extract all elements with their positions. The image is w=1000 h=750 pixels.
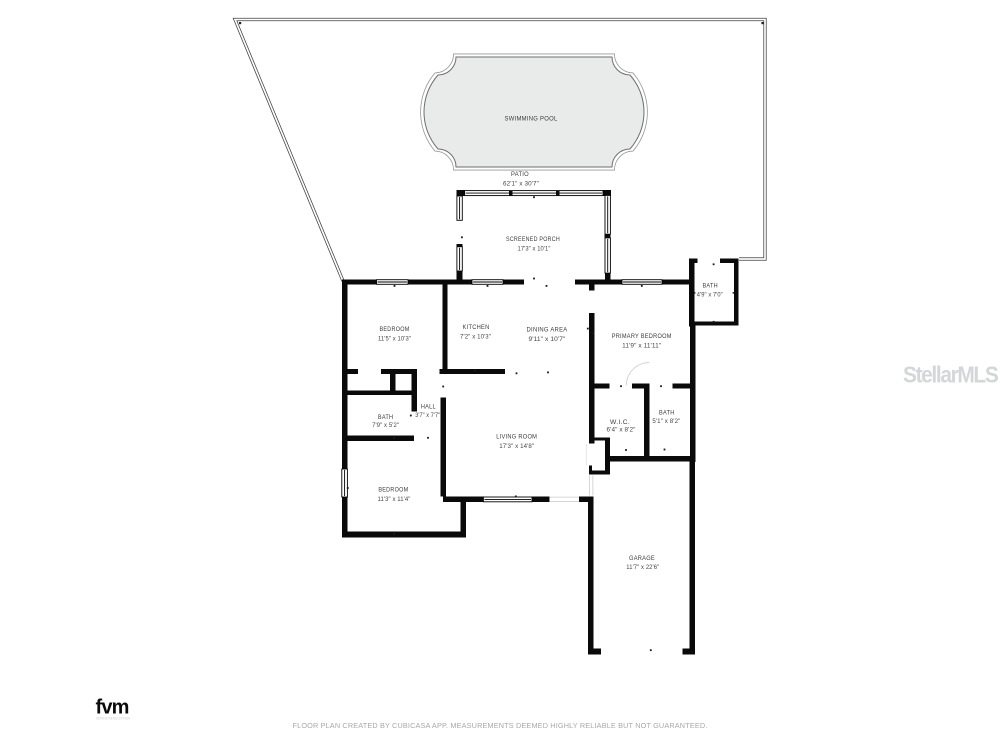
svg-text:W.I.C.: W.I.C.	[610, 419, 630, 426]
svg-text:SWIMMING POOL: SWIMMING POOL	[505, 116, 558, 123]
svg-text:17'3" x 14'8": 17'3" x 14'8"	[499, 443, 534, 450]
svg-text:BEDROOM: BEDROOM	[380, 326, 410, 333]
svg-text:BEDROOM: BEDROOM	[378, 487, 408, 494]
svg-text:62'1" x 30'7": 62'1" x 30'7"	[503, 181, 539, 188]
svg-text:FLOOR PLAN CREATED BY CUBICASA: FLOOR PLAN CREATED BY CUBICASA APP. MEAS…	[293, 721, 708, 730]
svg-text:7'2" x 10'3": 7'2" x 10'3"	[460, 333, 491, 340]
svg-text:11'3" x 11'4": 11'3" x 11'4"	[378, 496, 411, 503]
svg-text:3'7" x 7'7": 3'7" x 7'7"	[415, 412, 440, 419]
svg-text:17'3" x 10'1": 17'3" x 10'1"	[518, 245, 551, 252]
svg-text:4'9" x 7'0": 4'9" x 7'0"	[697, 291, 723, 298]
svg-text:StellarMLS: StellarMLS	[903, 362, 998, 388]
svg-text:11'5" x 10'3": 11'5" x 10'3"	[378, 336, 411, 343]
svg-text:11'7" x 22'6": 11'7" x 22'6"	[626, 564, 659, 571]
svg-text:6'4" x 8'2": 6'4" x 8'2"	[607, 426, 636, 433]
svg-text:7'9" x 5'2": 7'9" x 5'2"	[372, 422, 399, 429]
svg-text:BATH: BATH	[659, 410, 675, 417]
svg-text:CREATING BETTER REAL ESTATE ME: CREATING BETTER REAL ESTATE MEDIA	[96, 716, 130, 720]
svg-text:9'11" x 10'7": 9'11" x 10'7"	[529, 336, 566, 343]
svg-text:HALL: HALL	[421, 404, 436, 411]
svg-text:BATH: BATH	[378, 414, 394, 421]
svg-text:DINING AREA: DINING AREA	[527, 327, 568, 334]
svg-text:SCREENED PORCH: SCREENED PORCH	[506, 236, 560, 243]
svg-text:11'9" x 11'11": 11'9" x 11'11"	[622, 343, 661, 350]
svg-text:PRIMARY BEDROOM: PRIMARY BEDROOM	[612, 333, 672, 340]
svg-text:5'1" x 8'2": 5'1" x 8'2"	[652, 418, 680, 425]
svg-text:fvm: fvm	[96, 697, 129, 719]
svg-text:LIVING ROOM: LIVING ROOM	[496, 434, 537, 441]
svg-text:BATH: BATH	[702, 283, 718, 290]
svg-text:KITCHEN: KITCHEN	[463, 324, 490, 331]
svg-text:PATIO: PATIO	[511, 171, 529, 178]
svg-text:GARAGE: GARAGE	[629, 555, 655, 562]
